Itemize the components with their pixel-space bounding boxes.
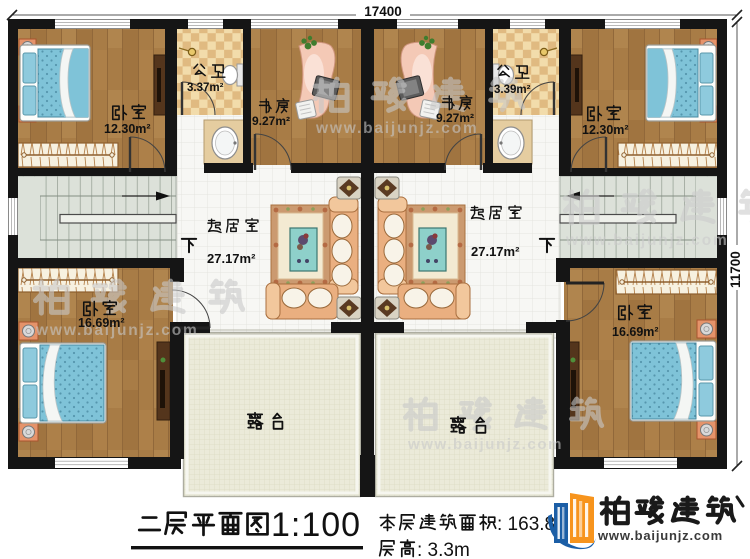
svg-text:www.baijunjz.com: www.baijunjz.com [407,436,563,453]
svg-text:27.17m²: 27.17m² [207,251,256,266]
svg-text:16.69m²: 16.69m² [612,325,659,339]
svg-text:12.30m²: 12.30m² [582,123,629,137]
svg-text:12.30m²: 12.30m² [104,122,151,136]
svg-text:www.baijunjz.com: www.baijunjz.com [597,528,723,543]
svg-text:9.27m²: 9.27m² [436,111,474,125]
svg-text:27.17m²: 27.17m² [471,244,520,259]
svg-text:www.baijunjz.com: www.baijunjz.com [565,232,729,249]
svg-text:3.37m²: 3.37m² [187,82,224,94]
svg-text:16.69m²: 16.69m² [78,316,125,330]
svg-text:11700: 11700 [728,251,743,288]
svg-text:1:100: 1:100 [271,506,361,544]
svg-text:3.39m²: 3.39m² [494,84,531,96]
svg-text:: 3.3m: : 3.3m [417,540,470,559]
svg-text:9.27m²: 9.27m² [252,114,290,128]
svg-text:17400: 17400 [364,4,402,19]
svg-text:: 163.8: : 163.8 [497,514,555,535]
